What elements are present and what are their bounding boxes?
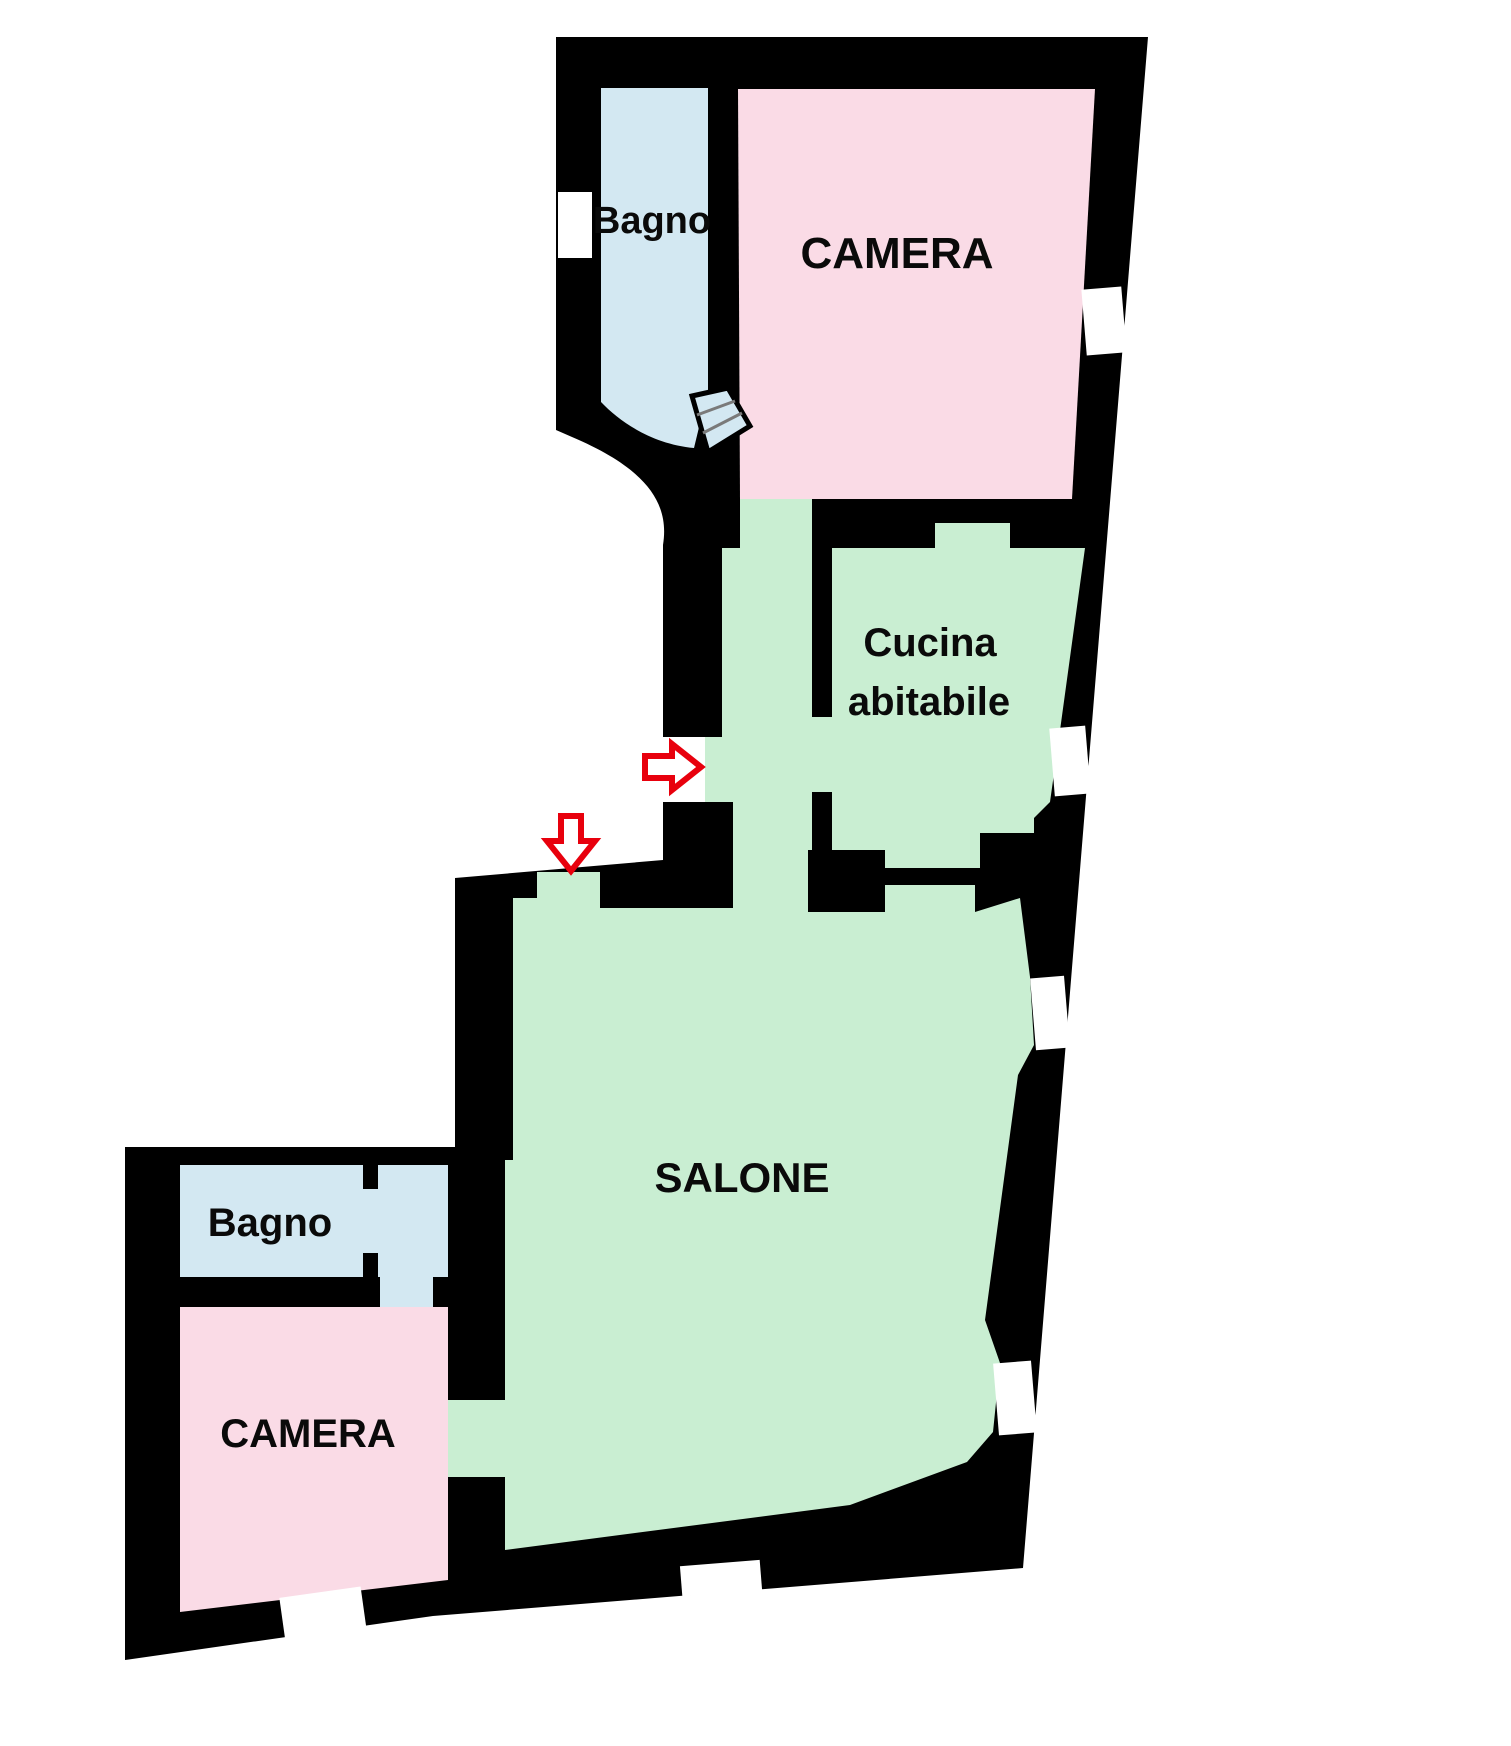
floor-plan: Bagno CAMERA Cucina abitabile SALONE Bag…	[0, 0, 1511, 1746]
window-salone-lower	[993, 1361, 1037, 1436]
room-salone	[447, 872, 1034, 1550]
window-camera-top	[1081, 286, 1126, 355]
wall-stub-bagno-top	[363, 1165, 378, 1189]
label-camera-bottom: CAMERA	[220, 1412, 396, 1456]
door-gap-corridor-kitchen	[810, 717, 832, 792]
room-camera-bottom	[180, 1307, 448, 1612]
room-camera-top	[738, 89, 1095, 499]
label-bagno-top: Bagno	[593, 200, 711, 242]
window-cucina	[1049, 726, 1090, 797]
wall-stub-bagno-bottom	[363, 1253, 378, 1277]
label-cucina-line2: abitabile	[848, 680, 1010, 724]
window-salone-bottom	[680, 1560, 762, 1596]
window-bagno-top	[558, 192, 592, 258]
floor-plan-canvas: Bagno CAMERA Cucina abitabile SALONE Bag…	[0, 0, 1511, 1746]
label-salone: SALONE	[654, 1154, 829, 1201]
label-cucina-line1: Cucina	[863, 621, 997, 665]
label-bagno-bottom: Bagno	[208, 1201, 332, 1245]
window-salone-upper	[1030, 976, 1070, 1051]
entrance-arrow-down	[547, 816, 595, 871]
label-camera-top: CAMERA	[800, 229, 993, 278]
